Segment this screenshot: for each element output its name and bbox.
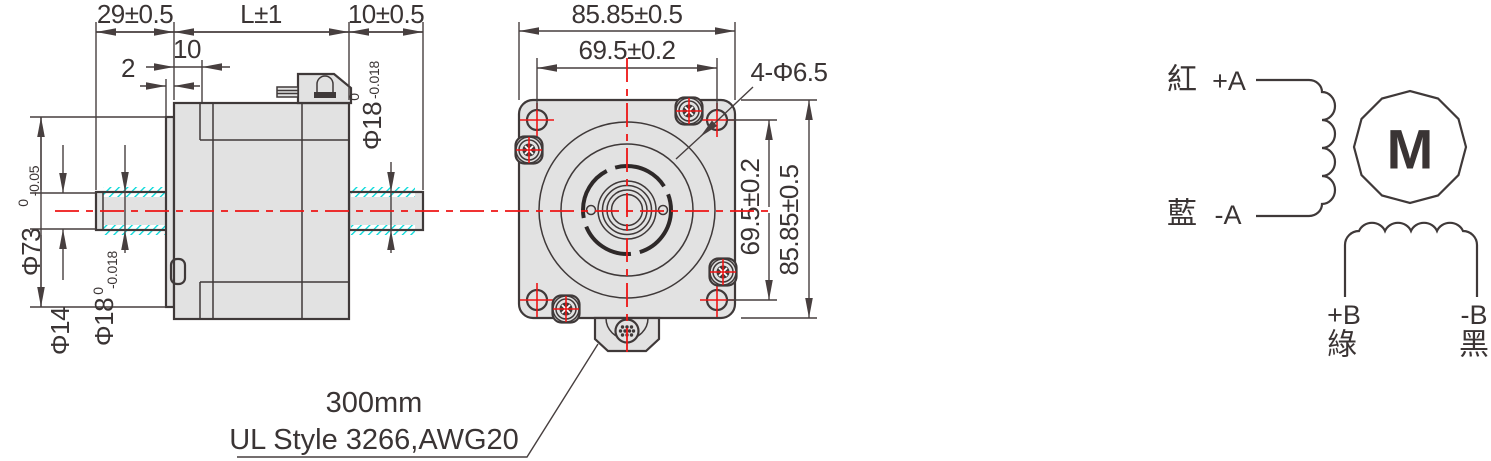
engineering-drawing: 29±0.5 L±1 10±0.5 10 2 Φ73 0: [0, 0, 1491, 461]
connector-tab: [277, 87, 298, 97]
dim-front-length: 29±0.5: [97, 0, 173, 29]
top-connector: [277, 74, 351, 103]
label-phase-a-minus: -A: [1215, 200, 1242, 230]
svg-text:0: 0: [346, 93, 362, 101]
wiring-diagram: 紅 +A 藍 -A M +B 綠 -B 黑: [1167, 64, 1489, 362]
dim-body-length: L±1: [240, 0, 282, 29]
front-view: 85.85±0.5 69.5±0.2 4-Φ6.5 69.5±0.2 85.85…: [516, 0, 828, 351]
screw: [553, 296, 580, 323]
dim-flange-width: 85.85±0.5: [572, 0, 683, 29]
screw: [516, 137, 543, 164]
label-phase-a-minus-color: 藍: [1167, 198, 1197, 231]
svg-text:Φ14: Φ14: [45, 307, 75, 355]
svg-text:Φ18: Φ18: [89, 298, 119, 346]
svg-text:Φ73: Φ73: [16, 228, 46, 276]
phase-a-coil: [1256, 80, 1335, 216]
motor-symbol-letter: M: [1387, 118, 1434, 181]
screw: [710, 259, 737, 286]
drawing-canvas: 29±0.5 L±1 10±0.5 10 2 Φ73 0: [0, 0, 1491, 461]
connector-slot: [314, 92, 336, 98]
label-phase-a-plus: +A: [1212, 66, 1246, 96]
svg-text:Φ18: Φ18: [357, 102, 387, 150]
svg-text:0: 0: [15, 199, 31, 207]
label-phase-b-plus-color: 綠: [1327, 329, 1357, 362]
dim-front-shaft-diameter: Φ18 0 -0.018: [89, 145, 125, 346]
svg-text:4-Φ6.5: 4-Φ6.5: [750, 57, 827, 87]
label-phase-b-plus: +B: [1327, 300, 1361, 330]
svg-text:-0.018: -0.018: [104, 251, 120, 289]
label-phase-a-plus-color: 紅: [1167, 64, 1197, 97]
svg-text:-0.018: -0.018: [366, 61, 382, 99]
front-right-dimensions: 69.5±0.2 85.85±0.5: [727, 100, 817, 318]
lead-wire-note: 300mm UL Style 3266,AWG20: [229, 344, 598, 457]
dim-rear-length: 10±0.5: [348, 0, 424, 29]
label-phase-b-minus-color: 黑: [1459, 329, 1489, 362]
label-phase-b-minus: -B: [1461, 300, 1488, 330]
dim-bolt-spacing-v: 69.5±0.2: [735, 158, 765, 255]
side-view: 29±0.5 L±1 10±0.5 10 2 Φ73 0: [15, 0, 424, 355]
svg-text:-0.05: -0.05: [26, 165, 42, 196]
phase-b-coil: [1345, 223, 1477, 297]
dim-pilot-depth: 10: [146, 34, 230, 102]
svg-text:10: 10: [173, 34, 201, 64]
note-wire-length: 300mm: [326, 387, 423, 419]
svg-text:2: 2: [121, 53, 135, 83]
note-wire-spec: UL Style 3266,AWG20: [229, 424, 519, 456]
screw: [676, 98, 703, 125]
dim-flange-height: 85.85±0.5: [774, 164, 804, 275]
